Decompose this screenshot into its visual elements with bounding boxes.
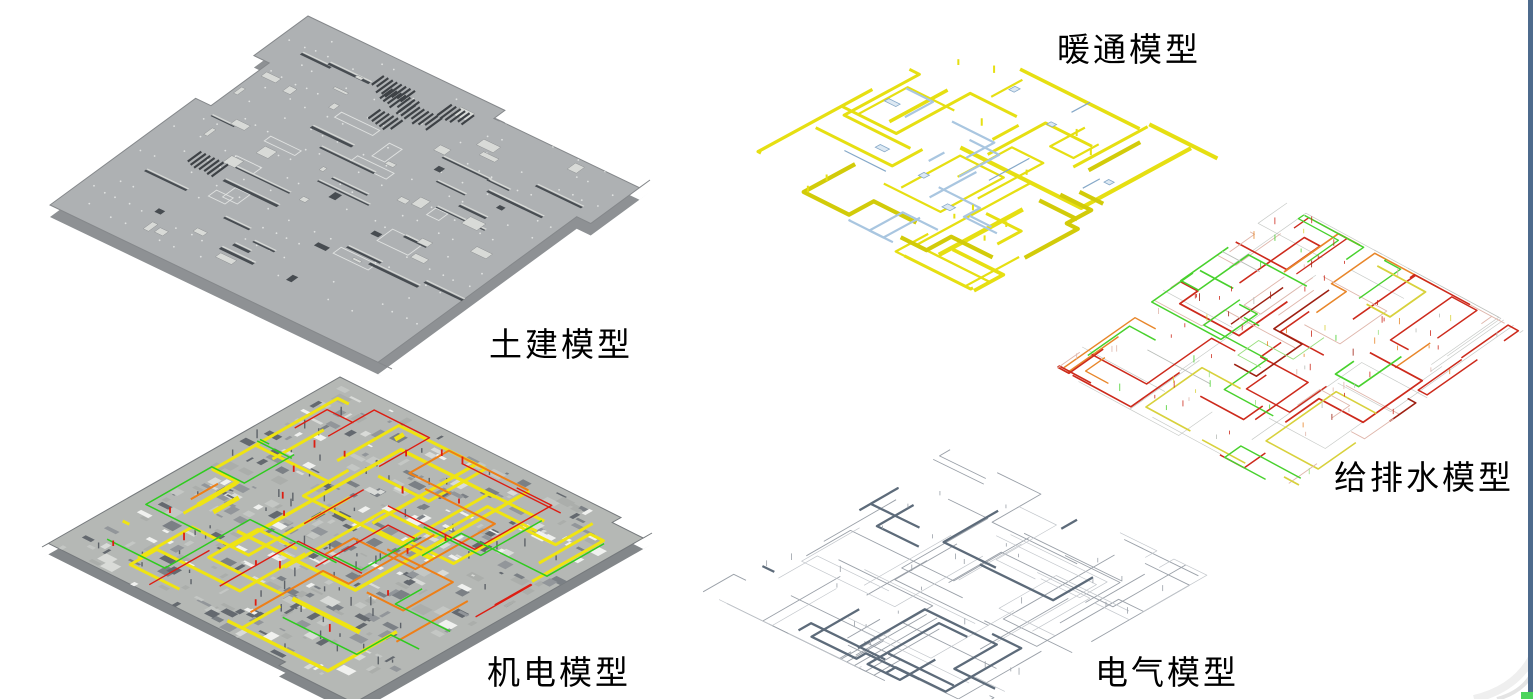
slide-canvas: 土建模型 机电模型 暖通模型 给排水模型 电气模型 — [0, 0, 1533, 699]
hvac-model-label: 暖通模型 — [1057, 32, 1201, 68]
scene-svg — [0, 0, 1533, 699]
plumbing-model-render — [1058, 203, 1524, 485]
plumbing-model-label: 给排水模型 — [1334, 460, 1514, 496]
mep-model-render — [42, 377, 652, 699]
hvac-model-render — [758, 59, 1217, 291]
civil-model-label: 土建模型 — [489, 327, 633, 363]
mep-model-label: 机电模型 — [487, 655, 631, 691]
corner-green-square — [1521, 692, 1533, 699]
slide-edge-bar — [1528, 0, 1533, 699]
electrical-model-label: 电气模型 — [1095, 655, 1239, 691]
